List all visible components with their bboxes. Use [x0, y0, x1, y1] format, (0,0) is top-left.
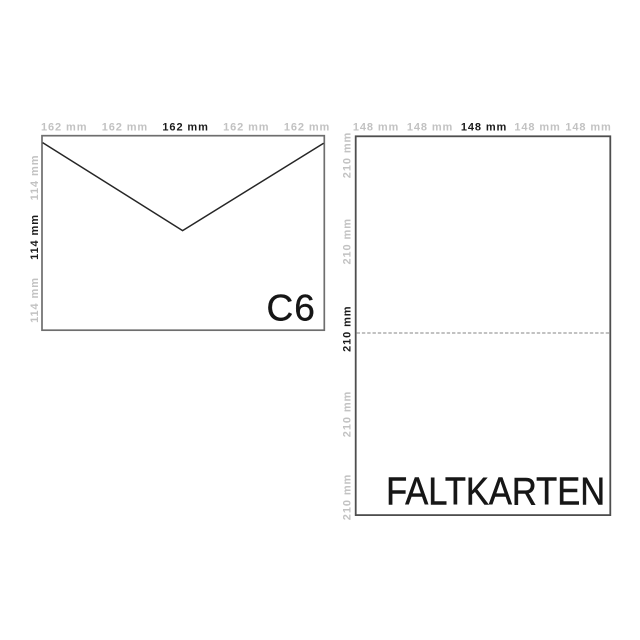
svg-text:148 mm: 148 mm: [461, 122, 507, 134]
svg-text:C6: C6: [266, 287, 315, 328]
svg-text:114 mm: 114 mm: [29, 214, 41, 260]
svg-text:148 mm: 148 mm: [353, 122, 399, 134]
svg-text:148 mm: 148 mm: [407, 122, 453, 134]
svg-text:FALTKARTEN: FALTKARTEN: [386, 470, 605, 513]
svg-text:148 mm: 148 mm: [514, 122, 560, 134]
svg-text:210 mm: 210 mm: [342, 391, 354, 437]
svg-text:210 mm: 210 mm: [342, 132, 354, 178]
svg-text:148 mm: 148 mm: [565, 122, 611, 134]
svg-text:114 mm: 114 mm: [29, 277, 41, 323]
svg-text:162 mm: 162 mm: [162, 122, 208, 134]
svg-text:162 mm: 162 mm: [41, 122, 87, 134]
svg-text:162 mm: 162 mm: [284, 122, 330, 134]
svg-text:162 mm: 162 mm: [223, 122, 269, 134]
svg-text:210 mm: 210 mm: [342, 218, 354, 264]
svg-text:114 mm: 114 mm: [29, 155, 41, 201]
svg-text:162 mm: 162 mm: [102, 122, 148, 134]
svg-text:210 mm: 210 mm: [342, 474, 354, 520]
svg-text:210 mm: 210 mm: [342, 306, 354, 352]
